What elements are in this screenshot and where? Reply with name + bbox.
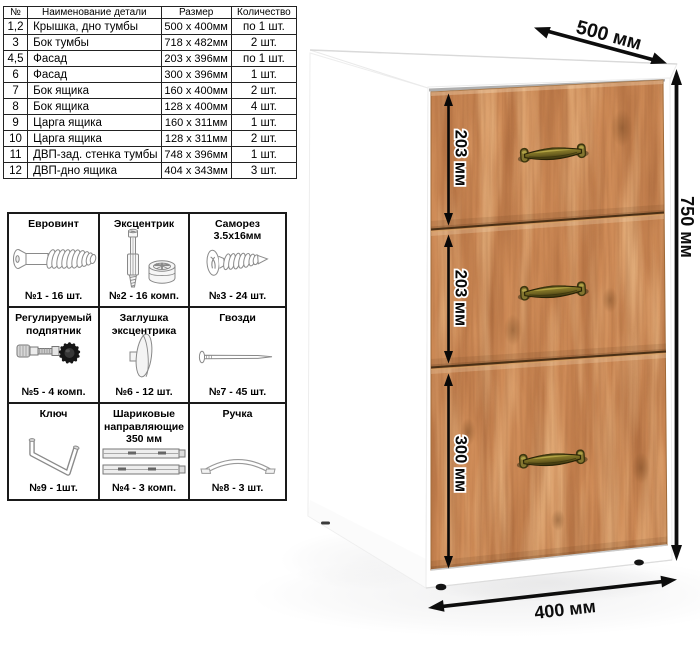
svg-text:203 мм: 203 мм — [452, 270, 470, 327]
svg-text:300 мм: 300 мм — [452, 436, 470, 493]
svg-text:203 мм: 203 мм — [452, 130, 470, 187]
svg-text:750 мм: 750 мм — [677, 196, 697, 258]
